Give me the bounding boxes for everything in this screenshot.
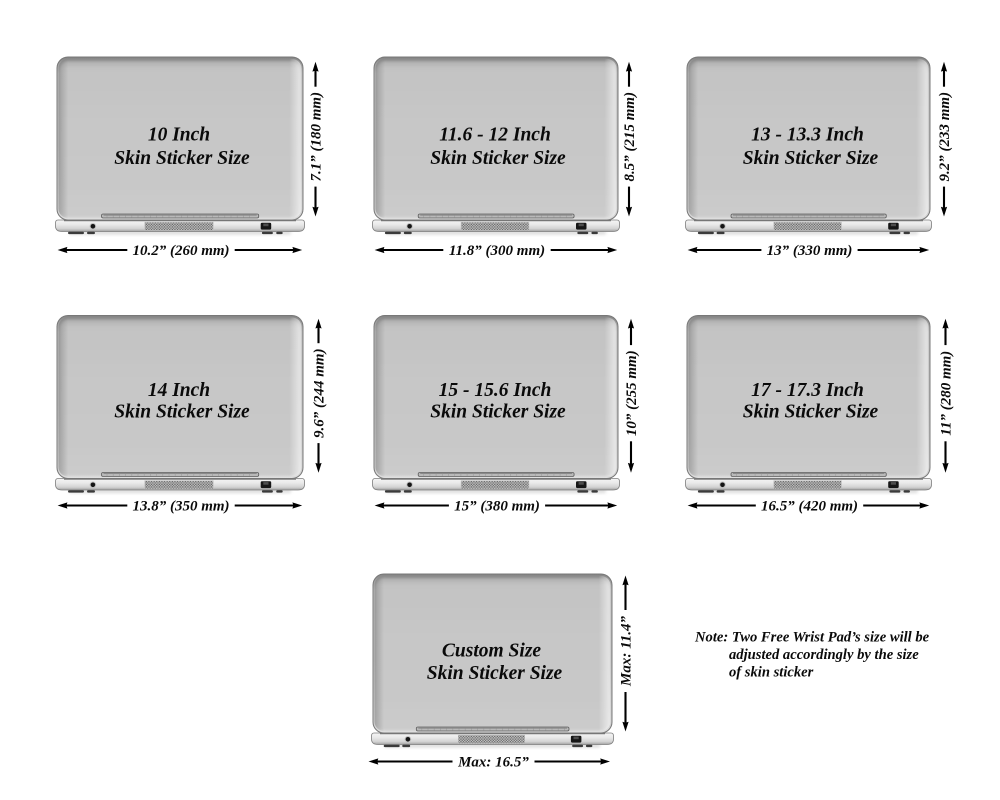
svg-text:9.6” (244 mm): 9.6” (244 mm): [312, 348, 328, 438]
svg-text:of skin sticker: of skin sticker: [729, 665, 814, 681]
svg-text:13 - 13.3 Inch: 13 - 13.3 Inch: [751, 125, 864, 146]
svg-text:17 - 17.3 Inch: 17 - 17.3 Inch: [751, 380, 864, 401]
svg-text:Note: Two Free Wrist Pad’s siz: Note: Two Free Wrist Pad’s size will be: [694, 630, 930, 646]
svg-text:11.8” (300 mm): 11.8” (300 mm): [449, 243, 545, 259]
svg-text:8.5” (215 mm): 8.5” (215 mm): [622, 92, 638, 182]
svg-text:13” (330 mm): 13” (330 mm): [767, 243, 853, 259]
svg-text:15 - 15.6 Inch: 15 - 15.6 Inch: [439, 380, 552, 401]
svg-text:Max: 11.4”: Max: 11.4”: [619, 616, 635, 688]
svg-text:Custom Size: Custom Size: [442, 641, 542, 662]
svg-text:Skin Sticker Size: Skin Sticker Size: [430, 148, 566, 169]
svg-text:Skin Sticker Size: Skin Sticker Size: [743, 148, 879, 169]
svg-text:10.2” (260 mm): 10.2” (260 mm): [132, 243, 229, 259]
svg-text:10 Inch: 10 Inch: [148, 125, 210, 146]
svg-text:Skin Sticker Size: Skin Sticker Size: [427, 663, 563, 684]
svg-text:Skin Sticker Size: Skin Sticker Size: [430, 402, 566, 423]
svg-text:Max: 16.5”: Max: 16.5”: [457, 755, 529, 771]
svg-text:Skin Sticker Size: Skin Sticker Size: [743, 402, 879, 423]
svg-text:14 Inch: 14 Inch: [148, 380, 210, 401]
svg-text:Skin Sticker Size: Skin Sticker Size: [114, 402, 250, 423]
svg-text:7.1” (180 mm): 7.1” (180 mm): [309, 92, 325, 182]
svg-text:16.5” (420 mm): 16.5” (420 mm): [761, 499, 858, 515]
svg-text:adjusted accordingly by the si: adjusted accordingly by the size: [729, 647, 919, 663]
svg-text:11.6 - 12 Inch: 11.6 - 12 Inch: [439, 125, 551, 146]
svg-text:11” (280 mm): 11” (280 mm): [939, 351, 955, 436]
svg-text:13.8” (350 mm): 13.8” (350 mm): [132, 499, 229, 515]
svg-text:9.2” (233 mm): 9.2” (233 mm): [937, 92, 953, 182]
svg-text:Skin Sticker Size: Skin Sticker Size: [114, 148, 250, 169]
svg-text:10” (255 mm): 10” (255 mm): [624, 350, 640, 436]
svg-text:15” (380 mm): 15” (380 mm): [454, 499, 540, 515]
